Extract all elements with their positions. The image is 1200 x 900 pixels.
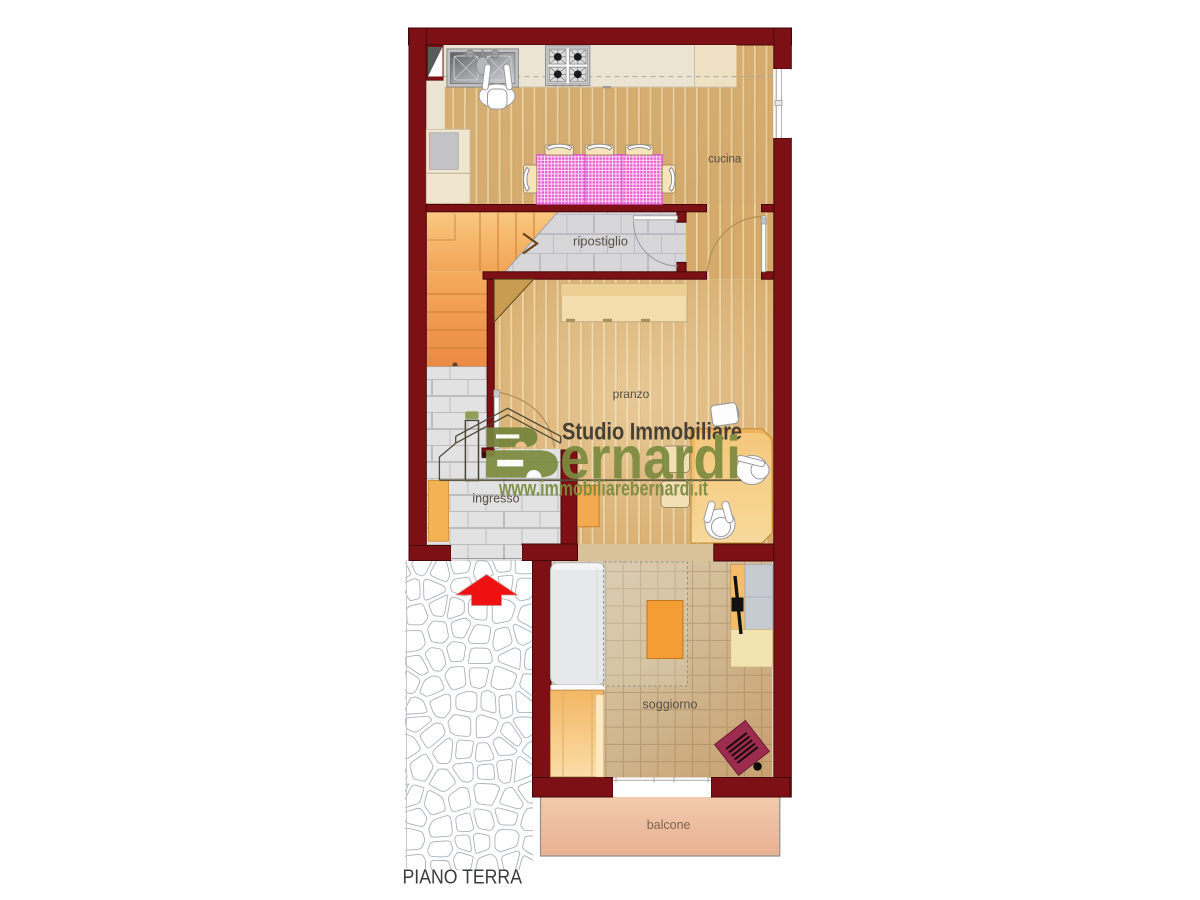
svg-text:www.immobiliarebernardi.it: www.immobiliarebernardi.it <box>498 476 708 500</box>
svg-text:pranzo: pranzo <box>613 387 650 401</box>
svg-text:cucina: cucina <box>708 154 742 166</box>
svg-text:ripostiglio: ripostiglio <box>573 234 628 249</box>
svg-text:soggiorno: soggiorno <box>643 698 698 712</box>
svg-text:PIANO TERRA: PIANO TERRA <box>403 866 523 889</box>
svg-text:balcone: balcone <box>647 818 691 832</box>
